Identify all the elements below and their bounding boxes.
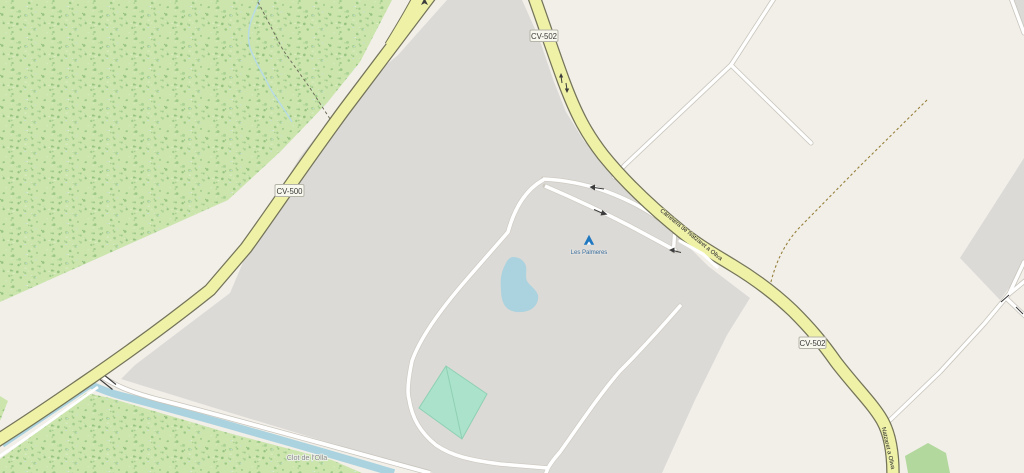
svg-text:CV-502: CV-502 [799,339,825,348]
svg-text:CV-500: CV-500 [276,187,303,196]
svg-text:CV-502: CV-502 [531,32,557,41]
svg-text:Clot de l'Olla: Clot de l'Olla [287,453,328,462]
svg-text:Les Palmeres: Les Palmeres [571,249,608,256]
